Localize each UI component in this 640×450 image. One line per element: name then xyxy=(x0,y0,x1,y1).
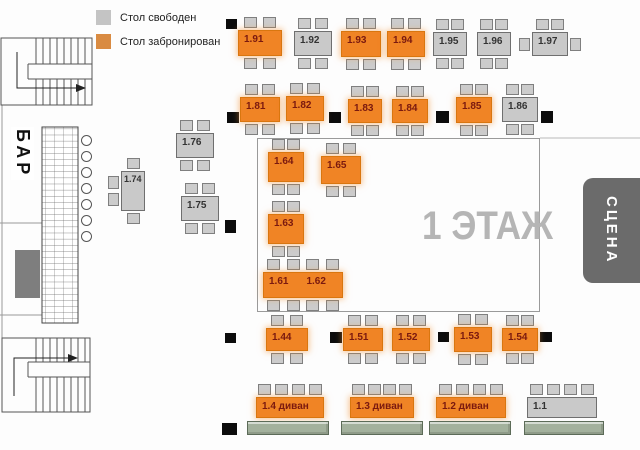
chair-icon xyxy=(475,354,488,365)
chair-icon xyxy=(287,139,300,150)
legend-booked-label: Стол забронирован xyxy=(120,36,220,48)
chair-icon xyxy=(315,58,328,69)
chair-icon xyxy=(290,315,303,326)
chair-icon xyxy=(309,384,322,395)
chair-icon xyxy=(326,186,339,197)
table-label: 1.64 xyxy=(274,156,293,167)
chair-icon xyxy=(180,120,193,131)
stage: СЦЕНА xyxy=(583,178,640,283)
chair-icon xyxy=(306,300,319,311)
legend: Стол свободен Стол забронирован xyxy=(96,10,220,49)
bar-stool-icon xyxy=(81,199,92,210)
chair-icon xyxy=(396,86,409,97)
column-pillar xyxy=(225,220,236,233)
free-table-swatch-icon xyxy=(96,10,111,25)
sofa-icon xyxy=(341,421,423,435)
table-1-4-диван[interactable]: 1.4 диван xyxy=(256,397,324,418)
table-label: 1.2 диван xyxy=(442,401,489,412)
chair-icon xyxy=(272,184,285,195)
table-1-51[interactable]: 1.51 xyxy=(343,328,383,351)
chair-icon xyxy=(351,86,364,97)
table-label: 1.97 xyxy=(538,36,557,47)
table-label: 1.95 xyxy=(439,36,458,47)
chair-icon xyxy=(290,353,303,364)
table-label: 1.86 xyxy=(508,101,527,112)
chair-icon xyxy=(271,353,284,364)
chair-icon xyxy=(306,259,319,270)
chair-icon xyxy=(436,19,449,30)
chair-icon xyxy=(460,84,473,95)
chair-icon xyxy=(326,143,339,154)
chair-icon xyxy=(399,384,412,395)
chair-icon xyxy=(506,353,519,364)
table-label: 1.94 xyxy=(393,35,412,46)
chair-icon xyxy=(363,18,376,29)
table-label: 1.65 xyxy=(327,160,346,171)
table-1-52[interactable]: 1.52 xyxy=(392,328,430,351)
table-1-93[interactable]: 1.93 xyxy=(341,31,381,57)
chair-icon xyxy=(391,59,404,70)
chair-icon xyxy=(262,84,275,95)
chair-icon xyxy=(366,86,379,97)
chair-icon xyxy=(244,58,257,69)
table-1-1[interactable]: 1.1 xyxy=(527,397,597,418)
chair-icon xyxy=(506,315,519,326)
chair-icon xyxy=(475,84,488,95)
chair-icon xyxy=(307,123,320,134)
column-pillar xyxy=(227,112,239,123)
chair-icon xyxy=(521,315,534,326)
chair-icon xyxy=(346,59,359,70)
table-1-63[interactable]: 1.63 xyxy=(268,214,304,244)
table-1-2-диван[interactable]: 1.2 диван xyxy=(436,397,506,418)
chair-icon xyxy=(348,315,361,326)
chair-icon xyxy=(480,58,493,69)
table-label: 1.76 xyxy=(182,137,201,148)
table-1-74[interactable]: 1.74 xyxy=(121,171,145,211)
chair-icon xyxy=(411,125,424,136)
bar-counter-icon xyxy=(42,127,78,323)
chair-icon xyxy=(581,384,594,395)
table-1-91[interactable]: 1.91 xyxy=(238,30,282,56)
chair-icon xyxy=(258,384,271,395)
table-label: 1.82 xyxy=(292,100,311,111)
column-pillar xyxy=(226,19,237,29)
column-pillar xyxy=(541,111,553,123)
chair-icon xyxy=(315,18,328,29)
chair-icon xyxy=(480,19,493,30)
chair-icon xyxy=(272,201,285,212)
chair-icon xyxy=(352,384,365,395)
column-pillar xyxy=(329,112,341,123)
table-label: 1.92 xyxy=(300,35,319,46)
chair-icon xyxy=(475,314,488,325)
chair-icon xyxy=(475,125,488,136)
chair-icon xyxy=(108,176,119,189)
chair-icon xyxy=(245,84,258,95)
chair-icon xyxy=(521,353,534,364)
chair-icon xyxy=(127,213,140,224)
chair-icon xyxy=(267,300,280,311)
chair-icon xyxy=(326,259,339,270)
floor-plan: Стол свободен Стол забронирован БАР 1 ЭТ… xyxy=(0,0,640,450)
table-label: 1.91 xyxy=(244,34,263,45)
table-1-83[interactable]: 1.83 xyxy=(348,99,382,123)
table-label: 1.61 xyxy=(269,276,288,287)
chair-icon xyxy=(570,38,581,51)
table-1-53[interactable]: 1.53 xyxy=(454,327,492,352)
table-label: 1.74 xyxy=(124,175,142,185)
table-1-94[interactable]: 1.94 xyxy=(387,31,425,57)
table-1-61-1-62[interactable]: 1.611.62 xyxy=(263,272,343,298)
chair-icon xyxy=(287,184,300,195)
chair-icon xyxy=(307,83,320,94)
chair-icon xyxy=(298,18,311,29)
chair-icon xyxy=(521,124,534,135)
chair-icon xyxy=(391,18,404,29)
chair-icon xyxy=(197,120,210,131)
table-label: 1.96 xyxy=(483,36,502,47)
table-label: 1.44 xyxy=(272,332,291,343)
chair-icon xyxy=(456,384,469,395)
chair-icon xyxy=(127,158,140,169)
booked-table-swatch-icon xyxy=(96,34,111,49)
chair-icon xyxy=(413,315,426,326)
table-label: 1.1 xyxy=(533,401,547,412)
chair-icon xyxy=(275,384,288,395)
chair-icon xyxy=(245,124,258,135)
chair-icon xyxy=(458,354,471,365)
chair-icon xyxy=(365,353,378,364)
column-pillar xyxy=(438,332,449,342)
bar-stool-icon xyxy=(81,231,92,242)
sofa-icon xyxy=(524,421,604,435)
chair-icon xyxy=(351,125,364,136)
chair-icon xyxy=(506,124,519,135)
chair-icon xyxy=(408,59,421,70)
table-1-92[interactable]: 1.92 xyxy=(294,31,332,56)
chair-icon xyxy=(271,315,284,326)
table-1-64[interactable]: 1.64 xyxy=(268,152,304,182)
chair-icon xyxy=(536,19,549,30)
chair-icon xyxy=(287,201,300,212)
chair-icon xyxy=(202,223,215,234)
chair-icon xyxy=(383,384,396,395)
chair-icon xyxy=(411,86,424,97)
table-label: 1.63 xyxy=(274,218,293,229)
chair-icon xyxy=(343,186,356,197)
chair-icon xyxy=(458,314,471,325)
chair-icon xyxy=(495,19,508,30)
legend-free-label: Стол свободен xyxy=(120,12,196,24)
floor-title: 1 ЭТАЖ xyxy=(422,204,553,249)
chair-icon xyxy=(551,19,564,30)
chair-icon xyxy=(287,300,300,311)
stage-label: СЦЕНА xyxy=(603,196,620,264)
table-label: 1.54 xyxy=(508,332,527,343)
bar-stool-icon xyxy=(81,183,92,194)
chair-icon xyxy=(439,384,452,395)
bar-label: БАР xyxy=(11,127,34,180)
table-label: 1.51 xyxy=(349,332,368,343)
chair-icon xyxy=(396,315,409,326)
chair-icon xyxy=(298,58,311,69)
staircase-bottom-icon xyxy=(2,338,90,412)
chair-icon xyxy=(547,384,560,395)
chair-icon xyxy=(290,123,303,134)
staircase-top-icon xyxy=(1,38,92,105)
chair-icon xyxy=(348,353,361,364)
chair-icon xyxy=(368,384,381,395)
chair-icon xyxy=(564,384,577,395)
table-1-86[interactable]: 1.86 xyxy=(502,97,538,122)
chair-icon xyxy=(262,124,275,135)
chair-icon xyxy=(451,58,464,69)
chair-icon xyxy=(272,246,285,257)
chair-icon xyxy=(185,223,198,234)
chair-icon xyxy=(287,259,300,270)
chair-icon xyxy=(506,84,519,95)
bar-stool-icon xyxy=(81,167,92,178)
chair-icon xyxy=(396,353,409,364)
chair-icon xyxy=(326,300,339,311)
chair-icon xyxy=(365,315,378,326)
legend-row-booked: Стол забронирован xyxy=(96,34,220,49)
chair-icon xyxy=(180,160,193,171)
chair-icon xyxy=(521,84,534,95)
chair-icon xyxy=(363,59,376,70)
table-1-81[interactable]: 1.81 xyxy=(240,97,280,122)
chair-icon xyxy=(244,17,257,28)
table-label: 1.53 xyxy=(460,331,479,342)
table-label: 1.75 xyxy=(187,200,206,211)
chair-icon xyxy=(451,19,464,30)
chair-icon xyxy=(519,38,530,51)
chair-icon xyxy=(366,125,379,136)
table-label: 1.52 xyxy=(398,332,417,343)
table-label: 1.62 xyxy=(306,276,325,287)
chair-icon xyxy=(495,58,508,69)
table-1-44[interactable]: 1.44 xyxy=(266,328,308,351)
column-pillar xyxy=(540,332,552,342)
table-1-76[interactable]: 1.76 xyxy=(176,133,214,158)
chair-icon xyxy=(290,83,303,94)
table-label: 1.81 xyxy=(246,101,265,112)
table-1-82[interactable]: 1.82 xyxy=(286,96,324,121)
table-1-54[interactable]: 1.54 xyxy=(502,328,538,351)
column-pillar xyxy=(222,423,237,435)
bar-stool-icon xyxy=(81,151,92,162)
sofa-icon xyxy=(247,421,329,435)
table-1-95[interactable]: 1.95 xyxy=(433,32,467,56)
table-1-97[interactable]: 1.97 xyxy=(532,32,568,56)
table-1-75[interactable]: 1.75 xyxy=(181,196,219,221)
table-1-3-диван[interactable]: 1.3 диван xyxy=(350,397,414,418)
chair-icon xyxy=(460,125,473,136)
chair-icon xyxy=(185,183,198,194)
table-1-85[interactable]: 1.85 xyxy=(456,97,492,123)
table-1-65[interactable]: 1.65 xyxy=(321,156,361,184)
bar-stool-icon xyxy=(81,135,92,146)
chair-icon xyxy=(530,384,543,395)
bar-stool-icon xyxy=(81,215,92,226)
chair-icon xyxy=(396,125,409,136)
table-label: 1.4 диван xyxy=(262,401,309,412)
sofa-icon xyxy=(429,421,511,435)
chair-icon xyxy=(490,384,503,395)
chair-icon xyxy=(263,58,276,69)
chair-icon xyxy=(292,384,305,395)
chair-icon xyxy=(272,139,285,150)
column-pillar xyxy=(436,111,449,123)
chair-icon xyxy=(267,259,280,270)
chair-icon xyxy=(263,17,276,28)
table-label: 1.93 xyxy=(347,35,366,46)
legend-row-free: Стол свободен xyxy=(96,10,220,25)
chair-icon xyxy=(413,353,426,364)
table-label: 1.85 xyxy=(462,101,481,112)
table-1-84[interactable]: 1.84 xyxy=(392,99,428,123)
chair-icon xyxy=(202,183,215,194)
column-pillar xyxy=(330,332,342,343)
chair-icon xyxy=(287,246,300,257)
table-1-96[interactable]: 1.96 xyxy=(477,32,511,56)
chair-icon xyxy=(473,384,486,395)
chair-icon xyxy=(343,143,356,154)
column-pillar xyxy=(225,333,236,343)
table-label: 1.83 xyxy=(354,103,373,114)
chair-icon xyxy=(436,58,449,69)
service-block-icon xyxy=(15,250,40,298)
chair-icon xyxy=(408,18,421,29)
table-label: 1.3 диван xyxy=(356,401,403,412)
chair-icon xyxy=(108,193,119,206)
table-label: 1.84 xyxy=(398,103,417,114)
chair-icon xyxy=(197,160,210,171)
chair-icon xyxy=(346,18,359,29)
